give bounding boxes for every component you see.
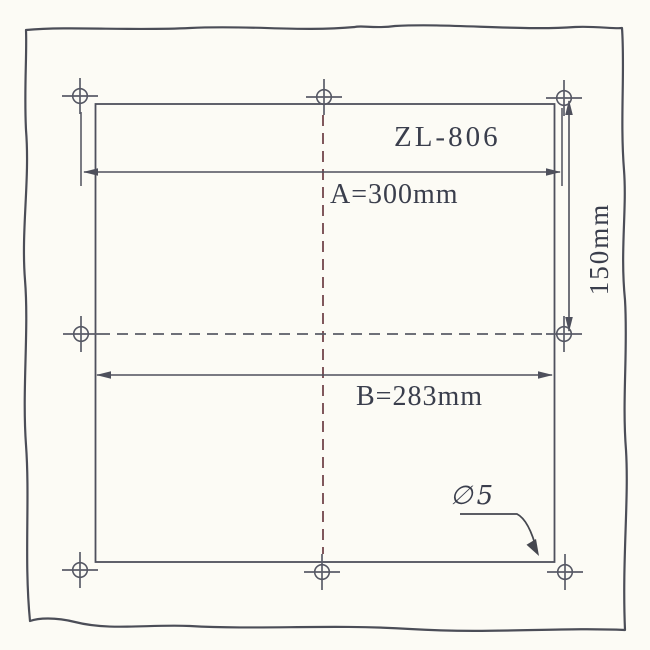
drawing-canvas: ZL-806 A=300mm B=283mm 150mm ∅5 xyxy=(0,0,650,650)
dimension-150-line xyxy=(565,100,573,332)
dimension-b-label: B=283mm xyxy=(356,381,483,413)
dimension-a-label: A=300mm xyxy=(330,179,459,211)
mounting-hole-middle-left xyxy=(63,316,99,352)
hole-callout-leader xyxy=(460,514,539,556)
hole-diameter-label: ∅5 xyxy=(450,481,497,511)
mounting-hole-bottom-right xyxy=(547,554,583,590)
drawing-linework xyxy=(0,0,650,650)
hand-drawn-border xyxy=(24,25,627,631)
mounting-hole-middle-right xyxy=(546,316,582,352)
mounting-hole-top-right xyxy=(546,80,582,116)
dimension-b-line xyxy=(96,371,553,379)
model-label: ZL-806 xyxy=(394,121,501,154)
dimension-150-label: 150mm xyxy=(583,199,615,299)
mounting-hole-top-center xyxy=(306,79,342,115)
mounting-hole-top-left xyxy=(62,78,98,114)
mounting-hole-bottom-center xyxy=(304,554,340,590)
mounting-hole-bottom-left xyxy=(62,552,98,588)
